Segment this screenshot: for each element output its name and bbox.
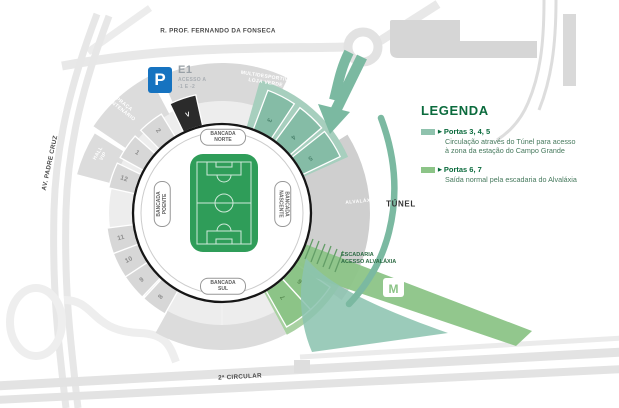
tunnel-label: TÚNEL (386, 200, 416, 209)
parking-icon[interactable]: P (148, 67, 172, 93)
pitch (190, 154, 258, 252)
legend-entry-title: Portas 3, 4, 5 (444, 127, 490, 136)
legend-entry-desc: Saída normal pela escadaria do Alvaláxia (445, 175, 619, 184)
building-right-strip (563, 14, 576, 86)
legend-title: LEGENDA (421, 103, 619, 118)
legend-entry-portas-3-4-5: ▶Portas 3, 4, 5 Circulação através do Tú… (421, 127, 619, 156)
stand-north: BANCADA NORTE (200, 129, 246, 146)
parking-access-line1: ACESSO A (178, 77, 206, 83)
legend-entry-title: Portas 6, 7 (444, 165, 482, 174)
building-south-small (294, 360, 310, 373)
map-svg: M (0, 0, 619, 408)
legend: LEGENDA ▶Portas 3, 4, 5 Circulação atrav… (421, 103, 619, 184)
metro-icon[interactable]: M (383, 278, 404, 297)
legend-entry-desc: à zona da estação do Campo Grande (445, 146, 619, 155)
escadaria-label: ESCADARIA ACESSO ALVALÁXIA (341, 252, 396, 267)
legend-entry-portas-6-7: ▶Portas 6, 7 Saída normal pela escadaria… (421, 165, 619, 184)
parking-code: E1 (178, 64, 192, 76)
road-label-top: R. PROF. FERNANDO DA FONSECA (160, 28, 276, 35)
parking-p-glyph: P (154, 70, 165, 89)
legend-swatch-teal (421, 129, 435, 135)
legend-marker-icon: ▶ (438, 129, 442, 135)
stadium-access-map: M R. PROF. FERNANDO DA FONSECA AV. PADRE… (0, 0, 619, 408)
building-northeast (390, 20, 537, 58)
legend-entry-desc: Circulação através do Túnel para acesso (445, 137, 619, 146)
stand-west: BANCADA POENTE (154, 181, 171, 227)
stand-east: BANCADA NASCENTE (275, 181, 292, 227)
parking-access-line2: -1 E -2 (178, 84, 195, 90)
legend-swatch-green (421, 167, 435, 173)
stand-south: BANCADA SUL (200, 278, 246, 295)
legend-marker-icon: ▶ (438, 167, 442, 173)
metro-icon-letter: M (389, 282, 399, 296)
